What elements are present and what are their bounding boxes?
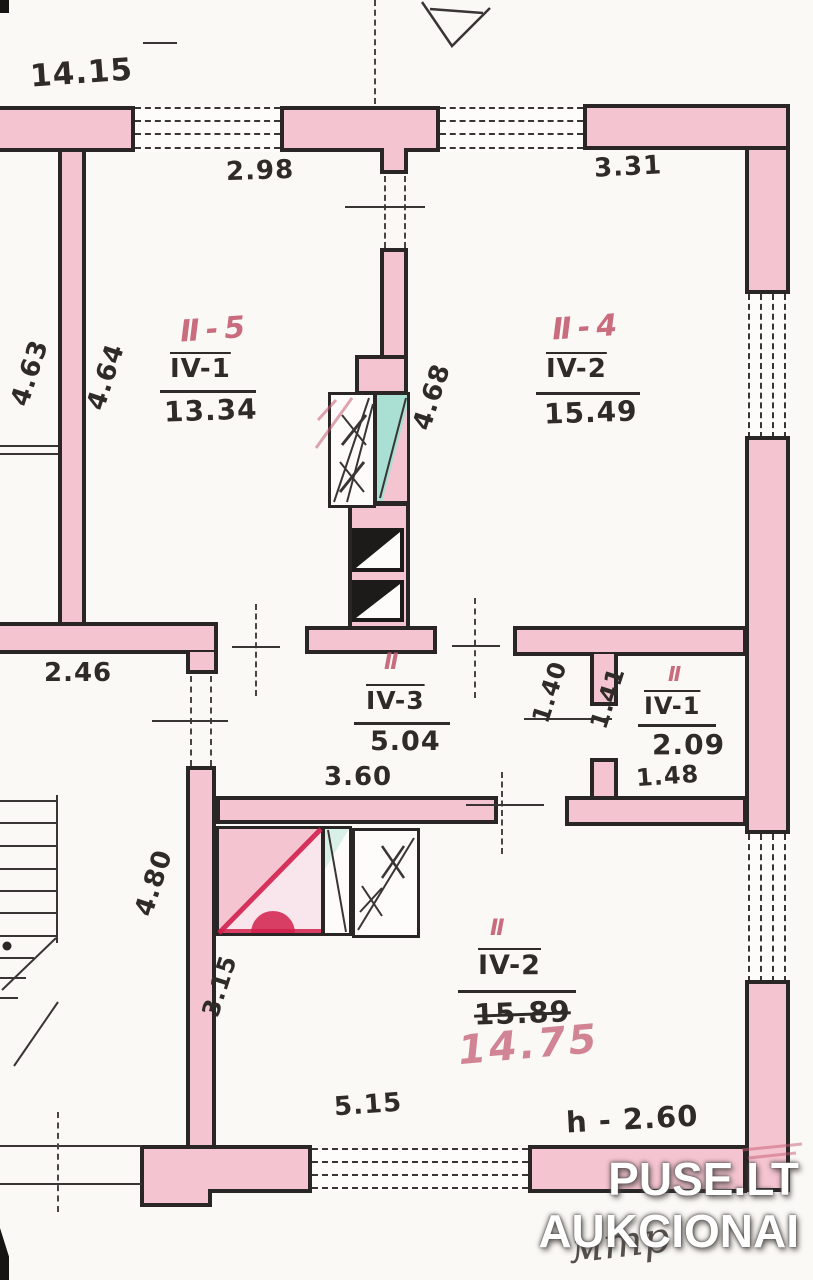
dim-tick-corridor-left bbox=[232, 646, 280, 648]
flue-symbol-1 bbox=[352, 528, 404, 572]
wall-hall-top bbox=[0, 622, 218, 654]
dim-tick-corridor-right bbox=[452, 645, 500, 647]
stair-tread bbox=[0, 800, 58, 802]
dim-4-63: 4.63 bbox=[5, 336, 55, 410]
wall-right-1 bbox=[745, 146, 790, 294]
watermark-line1: PUSE.LT bbox=[608, 1152, 799, 1206]
bigroom-fraction-line bbox=[458, 990, 576, 993]
dim-4-64: 4.64 bbox=[81, 340, 131, 414]
floor-plan-scan: 14.15 2.98 3.31 4.63 4.64 4.68 2.46 3.60… bbox=[0, 0, 813, 1280]
room4-area: 15.49 bbox=[543, 394, 638, 430]
wall-wc-top bbox=[513, 626, 747, 656]
bathtub-symbol bbox=[216, 826, 324, 936]
vent-window-symbol bbox=[328, 392, 376, 508]
wall-left-interior bbox=[58, 148, 86, 630]
window-right-1 bbox=[747, 294, 788, 438]
scan-artifact-top-left bbox=[0, 0, 9, 13]
wall-right-2 bbox=[745, 436, 790, 834]
porch-line-2 bbox=[0, 1183, 142, 1185]
bigroom-number: IV-2 bbox=[478, 950, 541, 981]
flue-1-triangle bbox=[356, 532, 400, 568]
wall-wc-bottom bbox=[565, 796, 747, 826]
stair-tread bbox=[0, 890, 58, 892]
dim-1-40: 1.40 bbox=[527, 658, 573, 727]
dim-2-46: 2.46 bbox=[44, 658, 112, 688]
stair-tread bbox=[0, 868, 58, 870]
vent-teal-fill bbox=[377, 395, 407, 501]
crossed-fixture-box bbox=[352, 828, 420, 938]
room4-number: IV-2 bbox=[546, 354, 607, 384]
dim-dash-bigroom-door bbox=[501, 772, 503, 854]
stair-dot bbox=[3, 942, 12, 951]
watermark-line2: AUKCIONAI bbox=[538, 1204, 799, 1258]
dim-dash-corridor-right bbox=[474, 598, 476, 698]
porch-dash bbox=[57, 1112, 59, 1212]
stair-diagonals bbox=[0, 938, 58, 1066]
room5-number: IV-1 bbox=[170, 354, 231, 384]
wall-top-right bbox=[583, 104, 790, 150]
corridor-area: 5.04 bbox=[370, 726, 441, 757]
wc-number: IV-1 bbox=[644, 692, 700, 720]
flue-2-triangle bbox=[356, 584, 400, 618]
dim-tail-top bbox=[143, 42, 177, 44]
wall-bottom-left bbox=[140, 1145, 312, 1193]
flue-symbol-2 bbox=[352, 580, 404, 622]
neighbour-sill-line-1 bbox=[0, 445, 58, 447]
wall-corridor-top bbox=[305, 626, 437, 654]
fixture-strip bbox=[322, 826, 352, 936]
stair-edge bbox=[56, 795, 58, 943]
door-shaft-dash-1 bbox=[384, 176, 386, 248]
window-right-2 bbox=[747, 834, 788, 982]
wall-hall-stub bbox=[186, 652, 218, 674]
corridor-fraction-line bbox=[354, 722, 450, 725]
room4-red-label: Ⅱ-4 bbox=[551, 308, 624, 348]
wc-area: 2.09 bbox=[652, 728, 725, 761]
wall-central-step bbox=[355, 355, 408, 395]
dim-4-80: 4.80 bbox=[129, 846, 179, 920]
dim-dash-corridor-left bbox=[255, 604, 257, 696]
wall-corridor-bottom bbox=[216, 796, 498, 824]
wall-top-middle bbox=[280, 106, 440, 152]
porch-line-1 bbox=[0, 1145, 142, 1147]
wc-fraction-line bbox=[638, 724, 716, 727]
dim-tick-bigroom-door bbox=[466, 804, 544, 806]
room5-area: 13.34 bbox=[163, 392, 258, 428]
stair-tread bbox=[0, 822, 58, 824]
dim-h-2-60: h - 2.60 bbox=[565, 1099, 699, 1140]
vent-shaft-box bbox=[374, 392, 410, 504]
dim-2-98: 2.98 bbox=[225, 155, 294, 187]
wall-top-left bbox=[0, 106, 135, 152]
wall-top-middle-stub bbox=[380, 148, 408, 174]
bathtub-red-baseline bbox=[219, 929, 321, 933]
dim-5-15: 5.15 bbox=[333, 1088, 403, 1123]
window-bottom bbox=[312, 1147, 528, 1191]
scan-artifact-bottom-left bbox=[0, 1228, 9, 1280]
room5-red-label: Ⅱ-5 bbox=[179, 310, 252, 350]
dim-4-68: 4.68 bbox=[407, 360, 457, 434]
wall-central bbox=[380, 248, 408, 360]
window-top-1 bbox=[135, 106, 280, 152]
dim-dash-top bbox=[374, 0, 376, 104]
window-top-2 bbox=[440, 106, 583, 152]
stair-tread bbox=[0, 935, 58, 937]
corridor-number: IV-3 bbox=[366, 686, 425, 715]
checkmark-annotation bbox=[422, 2, 490, 46]
dim-1-48: 1.48 bbox=[635, 760, 700, 792]
stair-tread bbox=[0, 912, 58, 914]
dim-tick-hall-door bbox=[152, 720, 228, 722]
dim-3-60: 3.60 bbox=[324, 762, 392, 792]
dim-tick-top-door bbox=[345, 206, 425, 208]
wc-red-label: Ⅱ bbox=[668, 662, 681, 686]
bigroom-red-label: Ⅱ bbox=[490, 916, 505, 941]
stair-tread bbox=[0, 845, 58, 847]
neighbour-sill-line-2 bbox=[0, 453, 58, 455]
dim-3-31: 3.31 bbox=[593, 150, 663, 184]
wall-bottom-left-step bbox=[140, 1189, 212, 1207]
dim-14-15: 14.15 bbox=[29, 51, 134, 94]
door-shaft-dash-2 bbox=[404, 176, 406, 248]
fixture-strip-teal bbox=[325, 829, 349, 869]
corridor-red-label: Ⅱ bbox=[384, 650, 399, 675]
